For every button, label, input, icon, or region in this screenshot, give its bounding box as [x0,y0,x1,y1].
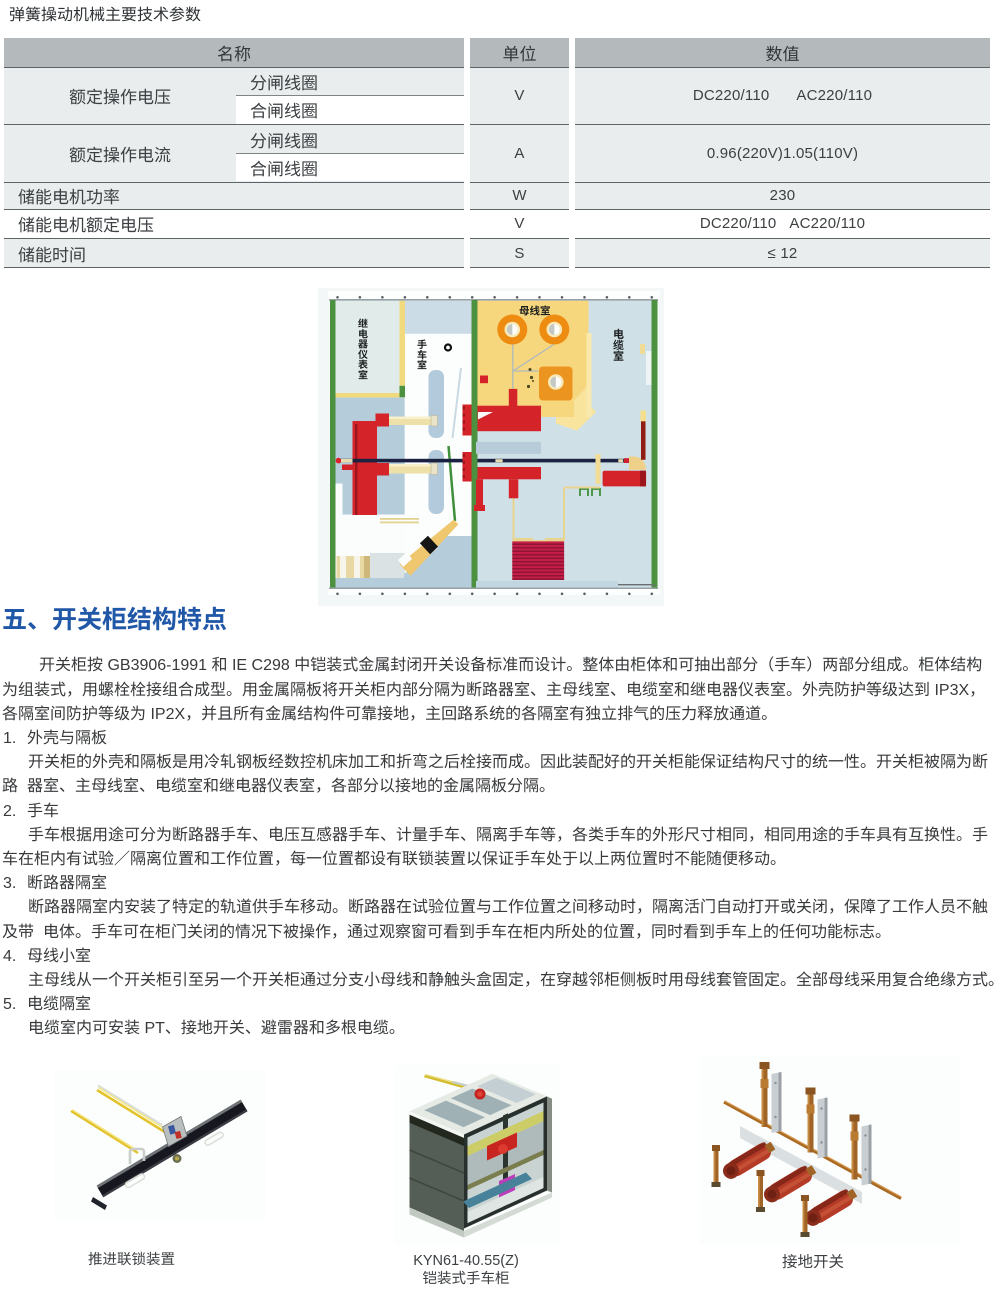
svg-text:继电器仪表室: 继电器仪表室 [358,318,368,382]
svg-text:手车室: 手车室 [417,339,427,372]
svg-text:母线室: 母线室 [519,305,551,318]
svg-text:电缆室: 电缆室 [613,328,624,363]
